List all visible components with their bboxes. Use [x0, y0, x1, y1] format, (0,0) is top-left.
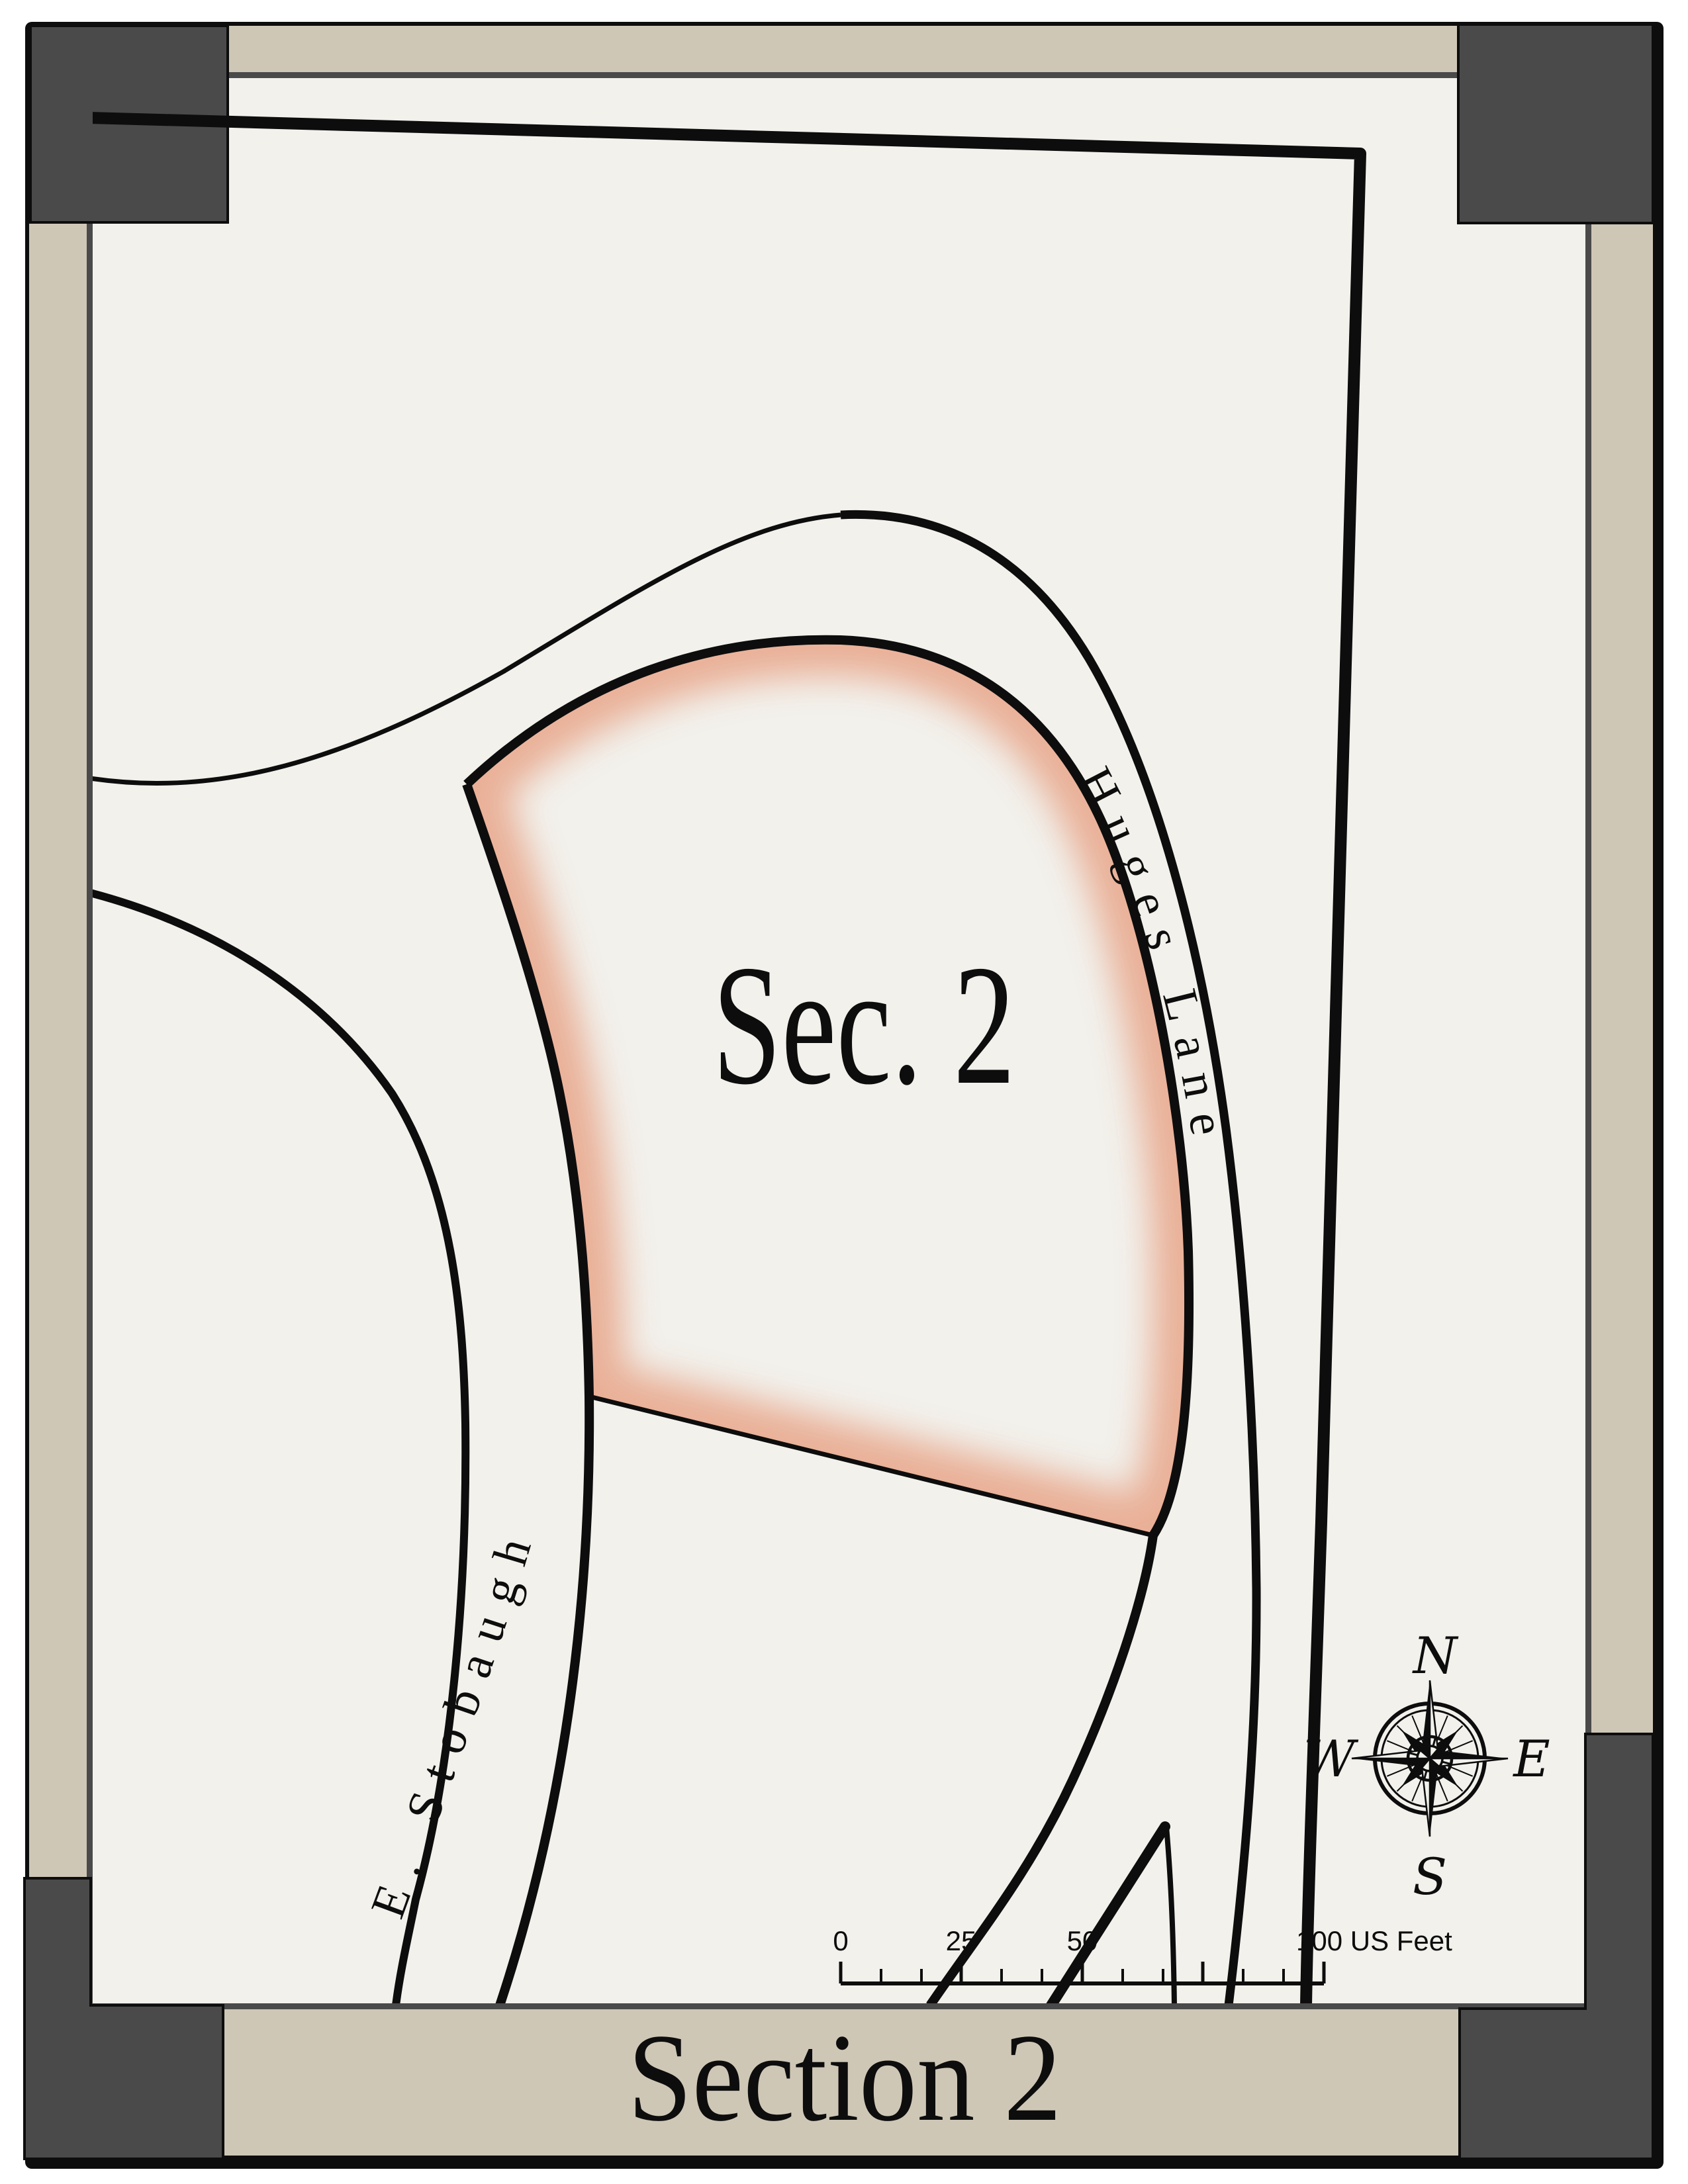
scale-label-100-us-feet: 100 US Feet [1296, 1925, 1452, 1956]
corner-ornament-top-right [1458, 24, 1653, 223]
title-band: Section 2 [628, 2008, 1061, 2147]
page-title: Section 2 [628, 2008, 1061, 2147]
plat-map-canvas: Sec. 2 Huges Lane E. Stobaugh 0 25 50 10… [0, 0, 1688, 2184]
scale-label-50: 50 [1067, 1925, 1098, 1956]
parcel-label-group: Sec. 2 [712, 930, 1015, 1120]
compass-letter-north: N [1412, 1626, 1459, 1685]
plat-map-page: Sec. 2 Huges Lane E. Stobaugh 0 25 50 10… [0, 0, 1688, 2184]
scale-label-0: 0 [833, 1925, 848, 1956]
scale-label-25: 25 [946, 1925, 977, 1956]
compass-letter-west: W [1303, 1729, 1359, 1788]
compass-letter-south: S [1413, 1847, 1447, 1906]
compass-letter-east: E [1512, 1729, 1550, 1788]
parcel-label: Sec. 2 [712, 930, 1015, 1120]
